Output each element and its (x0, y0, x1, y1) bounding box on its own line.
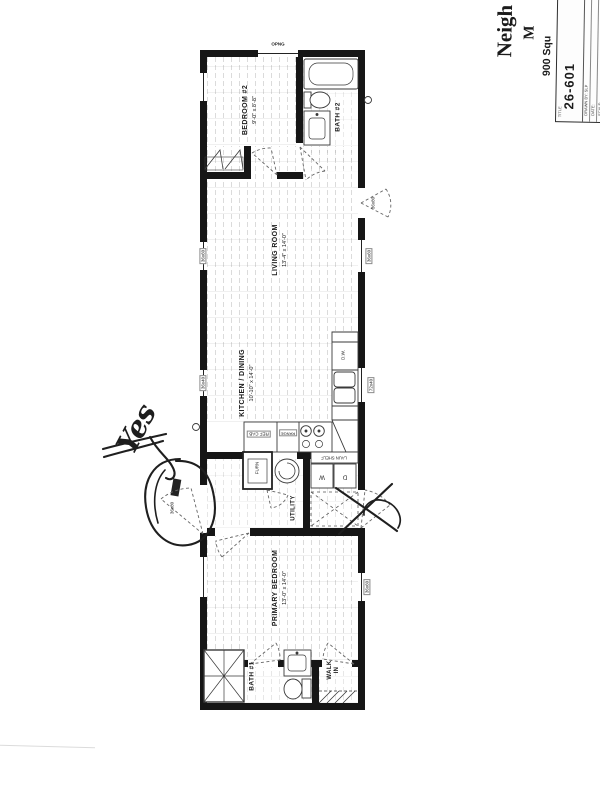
scanned-floor-plan-page: BEDROOM #2 9'-0" x 8'-8" BATH #2 LIVING … (0, 0, 600, 789)
pen-annotations (0, 0, 600, 789)
circle-annotation (145, 459, 215, 545)
x-annotation (336, 484, 400, 534)
